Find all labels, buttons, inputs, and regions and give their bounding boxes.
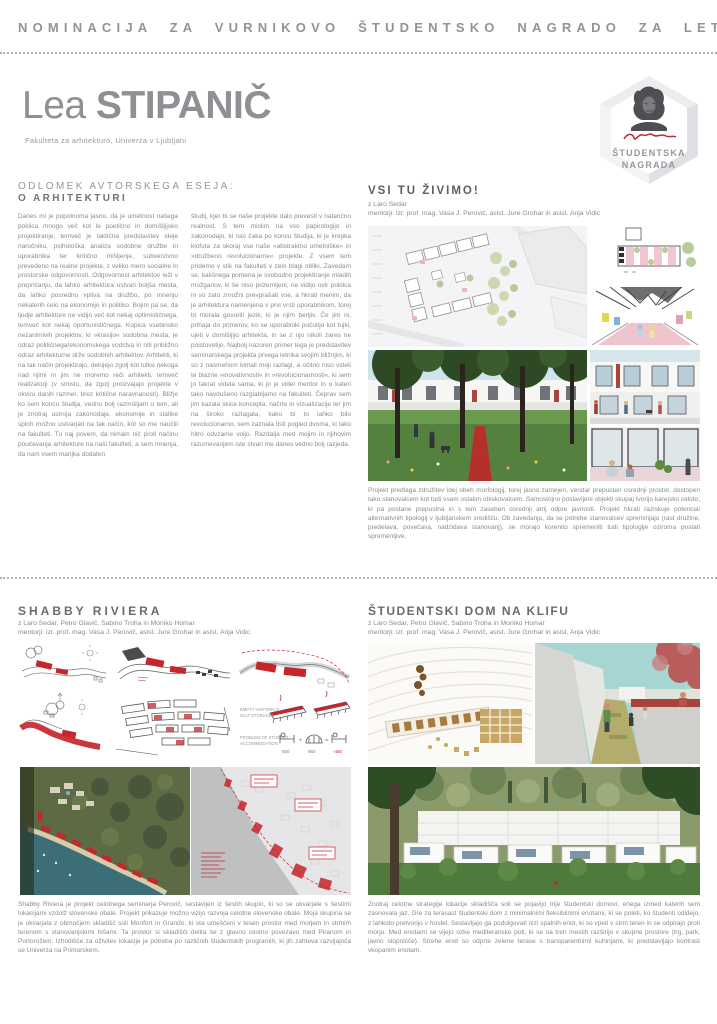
label-salt-storages: SALT STORAGES	[240, 713, 275, 718]
project-title-shabby-riviera: SHABBY RIVIERA	[18, 604, 162, 618]
author-last-name: STIPANIČ	[96, 84, 271, 127]
essay-column-2: študij, kjer bi se naše projekte dalo pr…	[191, 212, 351, 460]
essay-body: Danes mi je popolnoma jasno, da je umetn…	[18, 212, 352, 460]
value-minus-450: -450	[333, 749, 343, 754]
analysis-map-gray	[191, 767, 351, 895]
author-name: Lea STIPANIČ	[22, 84, 271, 128]
unit-typology-diagram	[590, 226, 700, 284]
project-team-klif: z Laro Sedar, Petro Glavič, Sabino Troha…	[368, 620, 545, 627]
project-mentors-klif: mentorji: izr. prof. mag. Vasa J. Perovi…	[368, 629, 600, 636]
cliff-building-render	[368, 767, 700, 895]
mediterranean-path-render	[535, 643, 700, 764]
essay-heading-line1: ODLOMEK AVTORSKEGA ESEJA:	[18, 181, 235, 192]
physical-model-photo	[368, 643, 532, 764]
courtyard-render	[368, 350, 587, 481]
site-plan-drawing	[368, 226, 587, 347]
coastal-concept-sketches: EMPTY HISTORICAL SALT STORAGES PROBLEM O…	[18, 643, 351, 763]
project-caption-klif: Znotraj celotne strategije lokacije skla…	[368, 900, 700, 956]
dotted-separator-top	[0, 52, 717, 54]
label-empty-historical: EMPTY HISTORICAL	[240, 707, 281, 712]
value-950: 950	[308, 749, 316, 754]
poster: NOMINACIJA ZA VURNIKOVO ŠTUDENTSKO NAGRA…	[0, 0, 717, 1024]
vurnik-portrait-icon	[631, 87, 667, 131]
essay-heading-line2: O ARHITEKTURI	[18, 193, 127, 204]
award-badge-hexagon: ŠTUDENTSKA NAGRADA	[586, 75, 712, 185]
award-badge: ŠTUDENTSKA NAGRADA	[586, 75, 712, 185]
project-team-vsi: z Laro Sedar	[368, 201, 407, 208]
project-caption-vsi: Projekt predlaga združitev idej obeh mor…	[368, 486, 700, 542]
project-caption-shabby: Shabby Riviera je projekt celotnega semi…	[18, 900, 351, 956]
project-mentors-vsi: mentorji: izr. prof. mag. Vasa J. Perovi…	[368, 210, 600, 217]
badge-line2: NAGRADA	[622, 160, 676, 170]
value-500: 500	[282, 749, 290, 754]
label-accommodation: ACCOMMODATION	[240, 741, 278, 746]
interior-render	[590, 427, 700, 481]
equals-sign: =	[325, 738, 329, 744]
project-mentors-shabby: mentorji: izr. prof. mag. Vasa J. Perovi…	[18, 629, 250, 636]
essay-column-1: Danes mi je popolnoma jasno, da je umetn…	[18, 212, 178, 460]
poster-header: NOMINACIJA ZA VURNIKOVO ŠTUDENTSKO NAGRA…	[18, 20, 708, 35]
plus-sign: +	[299, 738, 303, 744]
dotted-separator-middle	[0, 577, 717, 579]
aerial-photo-coast	[20, 767, 190, 895]
street-perspective-sketch	[590, 287, 700, 347]
project-title-vsi-tu-zivimo: VSI TU ŽIVIMO!	[368, 185, 480, 197]
project-team-shabby: z Laro Sedar, Petro Glavič, Sabino Troha…	[18, 620, 195, 627]
badge-line1: ŠTUDENTSKA	[612, 147, 686, 158]
author-affiliation: Fakulteta za arhitekturo, Univerza v Lju…	[25, 136, 186, 145]
project-title-studentski-dom: ŠTUDENTSKI DOM NA KLIFU	[368, 604, 569, 618]
elevation-render	[590, 350, 700, 424]
author-first-name: Lea	[22, 84, 86, 127]
